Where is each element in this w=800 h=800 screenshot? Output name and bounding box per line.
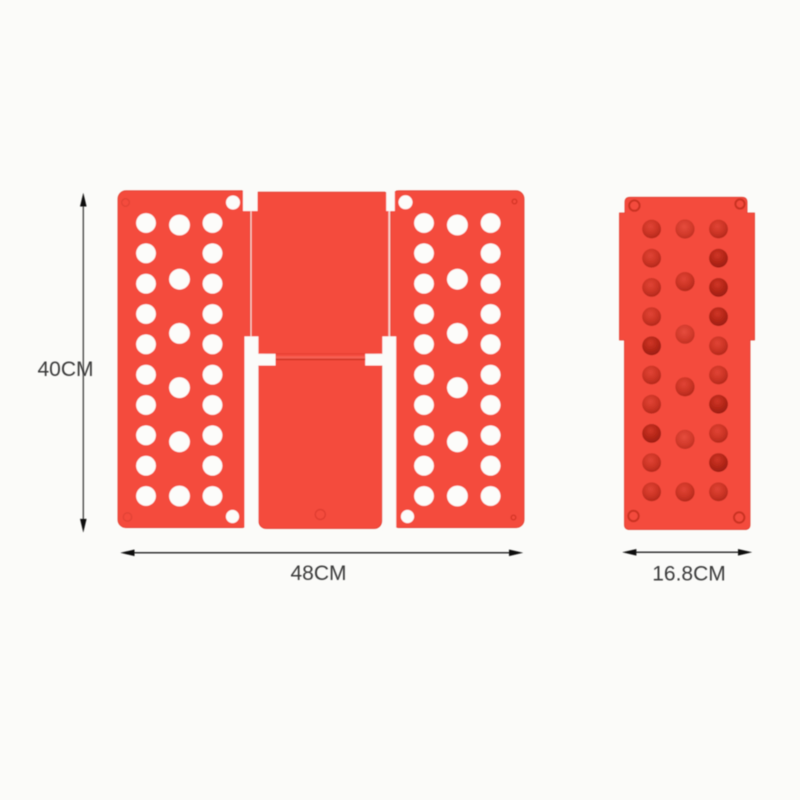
svg-text:48CM: 48CM bbox=[290, 562, 346, 585]
svg-text:16.8CM: 16.8CM bbox=[652, 562, 726, 585]
svg-text:40CM: 40CM bbox=[37, 358, 93, 381]
